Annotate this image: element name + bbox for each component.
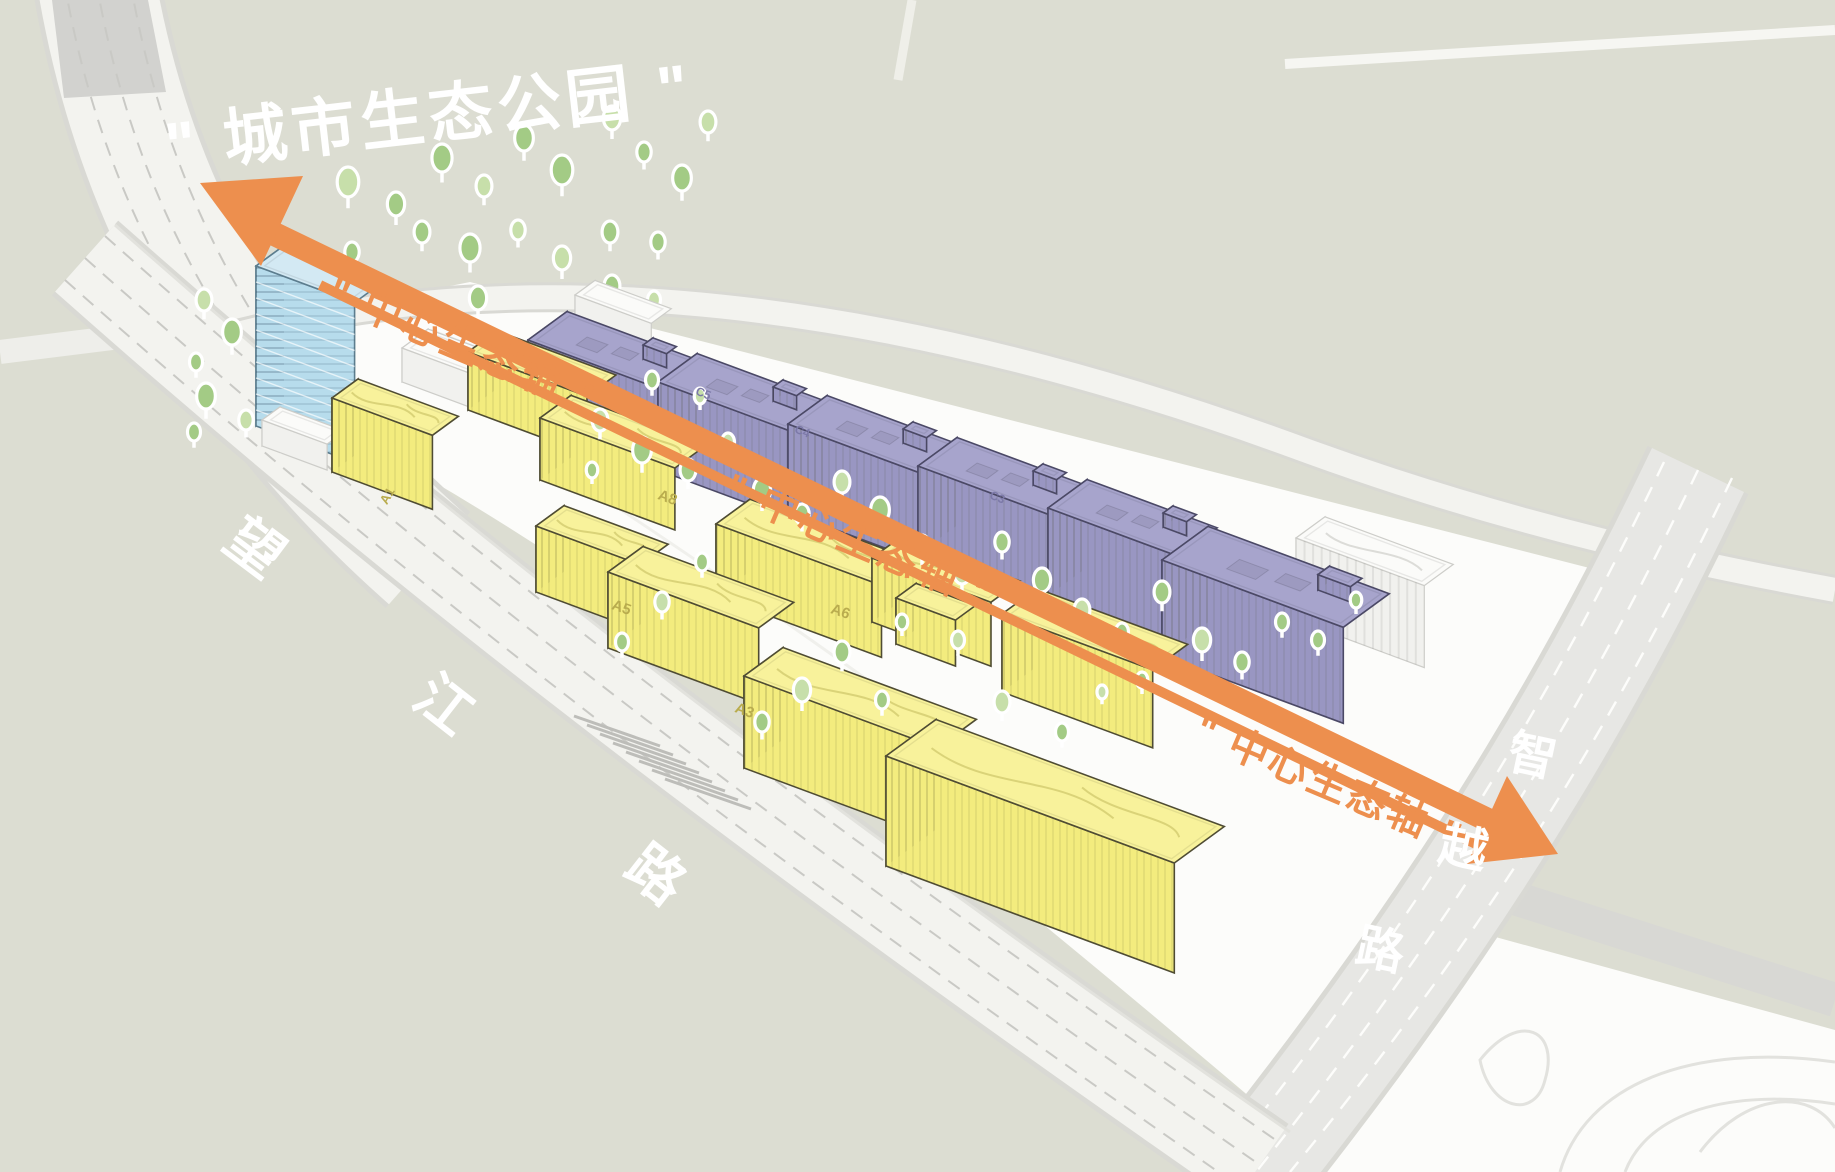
highway-median (52, 0, 166, 98)
diagram-canvas: A1 A8 A5 A3 A6 C5 C4 C3 " 中心生态轴 " " 中心生态… (0, 0, 1835, 1172)
site-plan-diagram: A1 A8 A5 A3 A6 C5 C4 C3 " 中心生态轴 " " 中心生态… (0, 0, 1835, 1172)
